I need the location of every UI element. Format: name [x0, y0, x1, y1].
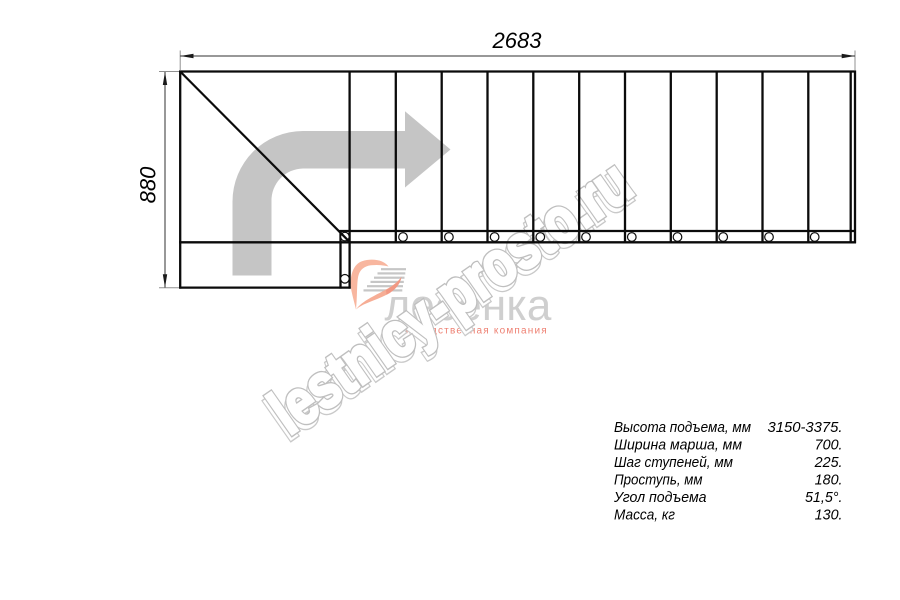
svg-text:Масса, кг: Масса, кг	[614, 508, 675, 524]
svg-text:51,5°.: 51,5°.	[805, 490, 843, 506]
svg-text:Шаг ступеней, мм: Шаг ступеней, мм	[614, 455, 733, 471]
svg-text:3150-3375.: 3150-3375.	[768, 420, 843, 436]
svg-text:Высота подъема, мм: Высота подъема, мм	[614, 420, 751, 436]
svg-text:130.: 130.	[815, 508, 843, 524]
svg-text:700.: 700.	[815, 438, 843, 454]
svg-text:225.: 225.	[814, 455, 843, 471]
svg-text:2683: 2683	[492, 28, 543, 53]
svg-text:180.: 180.	[815, 473, 843, 489]
svg-text:Ширина марша, мм: Ширина марша, мм	[614, 438, 742, 454]
svg-text:880: 880	[136, 166, 161, 203]
svg-text:Проступь, мм: Проступь, мм	[614, 473, 703, 489]
svg-text:Угол подъема: Угол подъема	[613, 490, 707, 506]
